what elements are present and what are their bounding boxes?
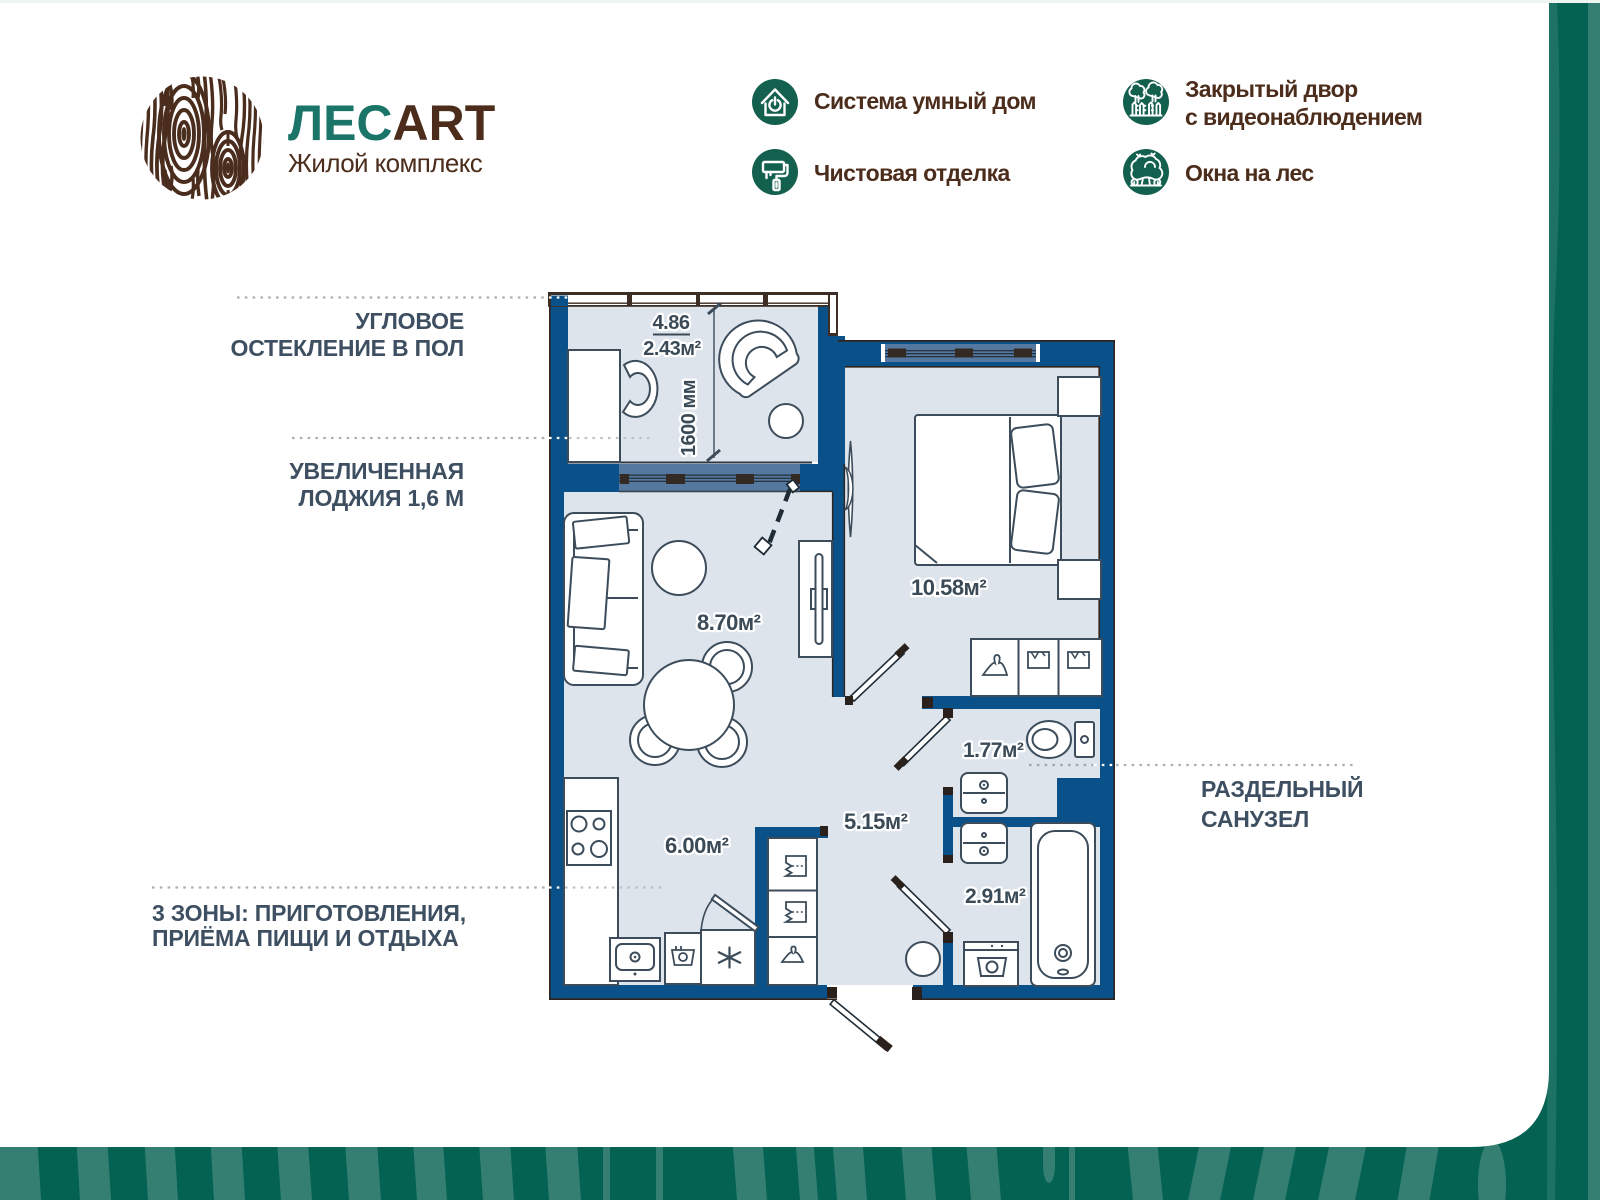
svg-text:1.77м²: 1.77м² — [963, 739, 1024, 762]
svg-text:2.43м²: 2.43м² — [643, 338, 701, 360]
svg-text:4.86: 4.86 — [653, 312, 690, 334]
svg-text:10.58м²: 10.58м² — [911, 575, 986, 600]
svg-text:8.70м²: 8.70м² — [697, 610, 761, 635]
svg-text:6.00м²: 6.00м² — [665, 833, 729, 858]
svg-text:1600 мм: 1600 мм — [678, 380, 700, 456]
svg-text:2.91м²: 2.91м² — [965, 885, 1026, 908]
svg-text:5.15м²: 5.15м² — [844, 809, 908, 834]
